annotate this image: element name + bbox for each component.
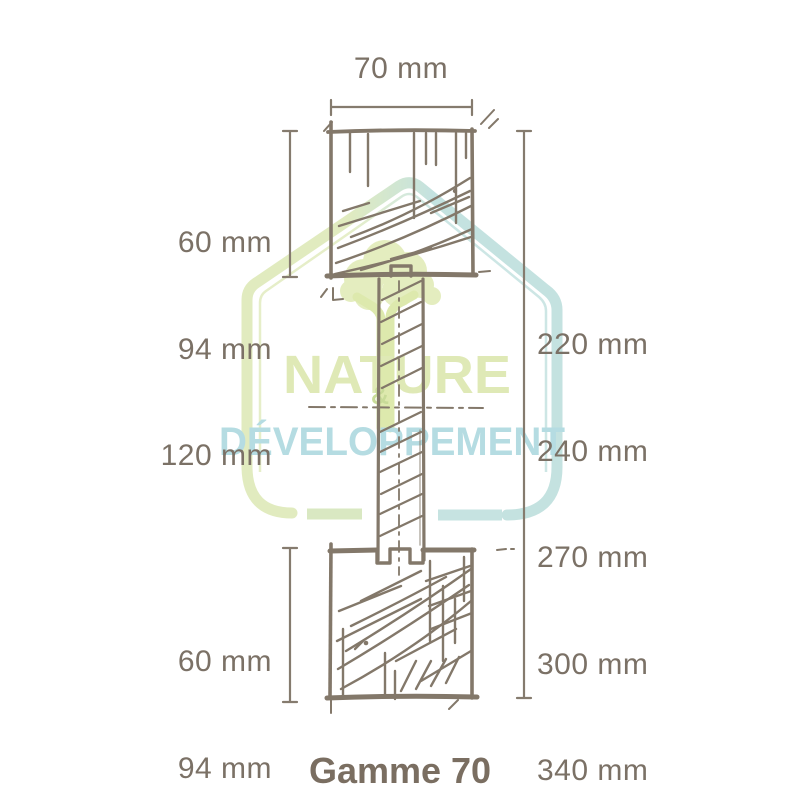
right-height-dimension-line [517,131,531,698]
height-label: 270 mm [537,540,648,576]
top-width-label: 70 mm [301,52,501,86]
bottom-block-grain [337,557,472,699]
diagram-page: NATURE & DÉVELOPPEMENT [0,0,800,800]
thickness-label: 94 mm [161,332,272,368]
top-width-dimension-line [331,100,472,115]
break-line [309,407,483,408]
profile-sketch [309,110,514,713]
sketch-ticks [321,110,514,713]
thickness-label: 60 mm [161,644,272,680]
right-height-labels: 220 mm 240 mm 270 mm 300 mm 340 mm 360 m… [537,256,648,800]
watermark-brand-name: NATURE [283,345,511,405]
left-bottom-dimension-line [283,548,297,702]
profile-diagram: NATURE & DÉVELOPPEMENT [0,0,800,800]
product-title: Gamme 70 [0,750,800,792]
thickness-label: 60 mm [161,225,272,261]
height-label: 300 mm [537,647,648,683]
height-label: 240 mm [537,434,648,470]
height-label: 220 mm [537,327,648,363]
left-top-thickness-labels: 60 mm 94 mm 120 mm [161,154,272,545]
thickness-label: 120 mm [161,438,272,474]
